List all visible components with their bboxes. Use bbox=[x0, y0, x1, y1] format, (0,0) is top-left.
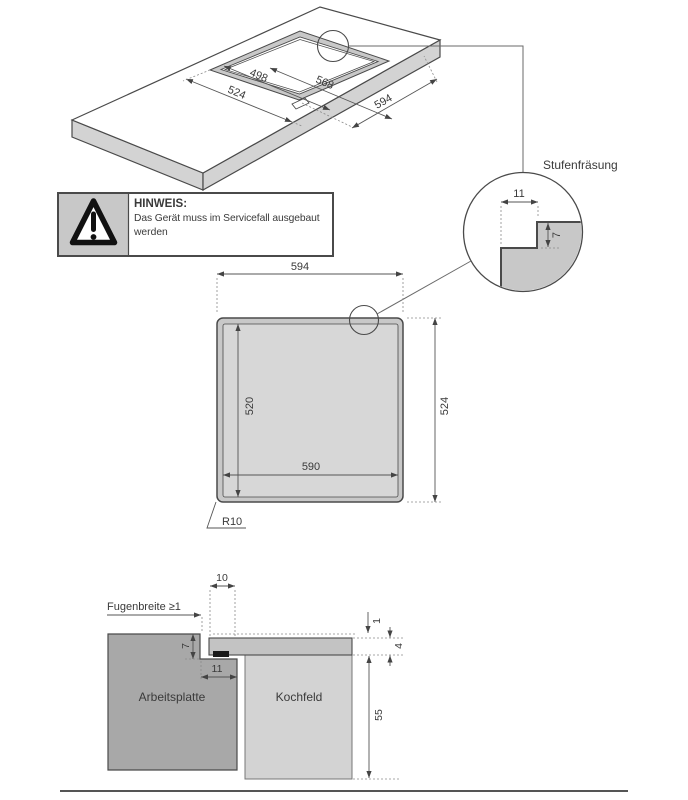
detail-leader-line-2 bbox=[377, 261, 471, 314]
stufenfraesung-detail: Stufenfräsung 11 7 bbox=[464, 158, 618, 294]
dim-body-height: 55 bbox=[373, 709, 385, 721]
cooktop-label: Kochfeld bbox=[276, 690, 323, 704]
cooktop-glass bbox=[209, 638, 352, 655]
seal bbox=[213, 651, 229, 657]
notice-text-line1: Das Gerät muss im Servicefall ausgebaut bbox=[134, 213, 320, 224]
dim-overlap: 10 bbox=[216, 572, 228, 584]
installation-drawing: 498 568 524 594 Stufenfräsung 11 7 bbox=[0, 0, 688, 800]
top-view: 594 524 520 590 R10 bbox=[207, 261, 471, 528]
dim-outer-width: 594 bbox=[291, 261, 309, 273]
dim-corner-radius: R10 bbox=[222, 516, 242, 528]
dim-inner-height: 520 bbox=[244, 397, 256, 415]
section-view: Arbeitsplatte Kochfeld Fugenbreite ≥1 10… bbox=[107, 572, 405, 779]
dim-594: 594 bbox=[373, 92, 395, 112]
notice-box: HINWEIS: Das Gerät muss im Servicefall a… bbox=[58, 193, 333, 256]
notice-title: HINWEIS: bbox=[134, 198, 187, 210]
notice-text-line2: werden bbox=[133, 227, 168, 238]
dim-glass-thickness: 4 bbox=[393, 643, 405, 649]
dim-outer-height: 524 bbox=[439, 397, 451, 415]
warning-exclamation-dot bbox=[91, 234, 97, 240]
dim-inner-width: 590 bbox=[302, 461, 320, 473]
joint-width-label: Fugenbreite ≥1 bbox=[107, 601, 181, 613]
dim-step-depth-section: 7 bbox=[180, 643, 192, 649]
worktop-label: Arbeitsplatte bbox=[139, 690, 206, 704]
dim-glass-offset: 1 bbox=[371, 618, 383, 624]
dim-step-width-section: 11 bbox=[212, 663, 223, 675]
cooktop-body bbox=[245, 655, 352, 779]
manual-page: 498 568 524 594 Stufenfräsung 11 7 bbox=[0, 0, 688, 800]
detail-label: Stufenfräsung bbox=[543, 158, 618, 172]
dim-step-width: 11 bbox=[513, 188, 524, 200]
isometric-view: 498 568 524 594 bbox=[72, 7, 523, 190]
dim-step-depth: 7 bbox=[551, 232, 563, 238]
